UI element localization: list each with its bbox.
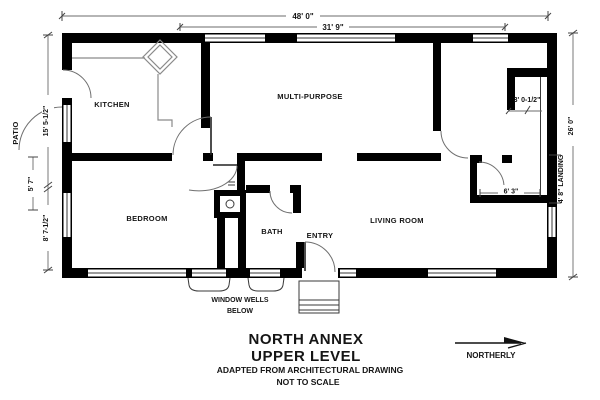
dim-interior-width: 31' 9" [322, 23, 343, 32]
dim-tick [525, 106, 530, 114]
wall-bath-entry-upper [293, 185, 301, 213]
wall-bedroom-top [72, 153, 172, 161]
floor-plan-svg: 48' 0" 31' 9" 15' 5-1/2" 8' 7-1/2" 5' 7" [0, 0, 600, 400]
closet-interior [220, 196, 240, 212]
bath-door-swing-arc [270, 191, 292, 213]
entry-steps [299, 281, 339, 313]
north-arrow-icon [504, 337, 526, 343]
room-label-bedroom: BEDROOM [126, 214, 167, 223]
wall-hall-side [237, 153, 245, 193]
window-well [188, 278, 230, 291]
drawing-subtitle: UPPER LEVEL [251, 348, 361, 365]
wall-hall-top [237, 153, 322, 161]
wall-landing-top-right [502, 155, 512, 163]
wall-landing-bottom [470, 195, 557, 203]
entry-door-swing-arc [305, 242, 335, 272]
dim-landing-width: 6' 3" [504, 189, 519, 196]
dim-overall-depth: 26' 0" [568, 117, 575, 136]
north-arrow-icon-lower [508, 343, 526, 348]
site-features [188, 278, 339, 313]
dim-overall-width: 48' 0" [292, 12, 313, 21]
landing-door-swing-arc [479, 162, 504, 187]
patio-door-opening [62, 70, 72, 98]
north-arrow: NORTHERLY [455, 337, 526, 360]
drawing-note-adapted: ADAPTED FROM ARCHITECTURAL DRAWING [217, 365, 404, 375]
bedroom-door-swing-arc [189, 166, 237, 191]
dim-kitchen-side: 15' 5-1/2" [43, 106, 50, 137]
room-label-multi-purpose: MULTI-PURPOSE [277, 92, 342, 101]
dimension-lines: 48' 0" 31' 9" 15' 5-1/2" 8' 7-1/2" 5' 7" [27, 9, 579, 280]
entry-door-opening [302, 268, 338, 278]
wall-bedroom-right [217, 218, 225, 268]
doors [19, 70, 504, 272]
wall-bath-top [246, 185, 270, 193]
room-label-living-room: LIVING ROOM [370, 216, 424, 225]
note-below: BELOW [227, 308, 253, 315]
north-arrow-label: NORTHERLY [466, 351, 516, 360]
room-label-entry: ENTRY [307, 231, 334, 240]
floor-plan-drawing: 48' 0" 31' 9" 15' 5-1/2" 8' 7-1/2" 5' 7" [0, 0, 600, 400]
dim-stair-closet: 3' 0-1/2" [514, 97, 541, 104]
room-label-bath: BATH [261, 227, 282, 236]
window-well [248, 278, 284, 291]
wall-living-top [357, 153, 441, 161]
annotations: WINDOW WELLS BELOW [211, 297, 268, 315]
kitchen-counter [72, 40, 177, 127]
drawing-note-scale: NOT TO SCALE [276, 377, 339, 387]
room-label-kitchen: KITCHEN [94, 100, 129, 109]
dim-bedroom-side: 8' 7-1/2" [43, 215, 50, 242]
wall-bath-entry-lower [296, 242, 304, 268]
label-landing: 4' 8" LANDING [558, 154, 565, 203]
counter-edge [158, 74, 172, 127]
wall-multipurpose-divider [433, 43, 441, 131]
title-block: NORTH ANNEX UPPER LEVEL ADAPTED FROM ARC… [217, 331, 404, 387]
drawing-title: NORTH ANNEX [249, 331, 364, 348]
stairhall-door-swing-arc [441, 131, 468, 158]
room-label-patio: PATIO [11, 121, 20, 144]
patio-exterior-door-swing-arc [19, 107, 62, 150]
note-window-wells: WINDOW WELLS [211, 297, 268, 304]
dim-patio-span: 5' 7" [28, 177, 35, 192]
wall-kitchen-divider [201, 43, 210, 128]
